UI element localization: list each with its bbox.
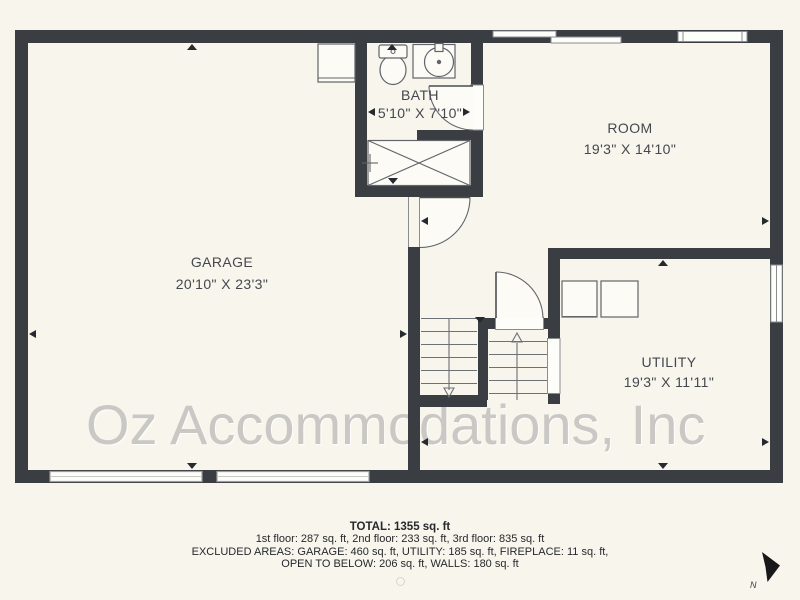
dimension-marker bbox=[421, 438, 428, 446]
dimension-marker bbox=[658, 260, 668, 266]
room-name: GARAGE bbox=[191, 254, 253, 270]
room-name: ROOM bbox=[607, 120, 652, 136]
total-area: TOTAL: 1355 sq. ft bbox=[0, 521, 800, 533]
room-label-bath: BATH 5'10" X 7'10" bbox=[345, 86, 495, 122]
bath-wall-stub bbox=[417, 130, 473, 140]
hall-wall bbox=[408, 247, 420, 483]
windows bbox=[493, 31, 782, 394]
stairs-bottom-wall bbox=[420, 395, 487, 407]
room-dimensions: 19'3" X 11'11" bbox=[569, 372, 769, 392]
door-opening bbox=[496, 318, 544, 330]
bath-wall-right-upper bbox=[471, 43, 483, 85]
room-label-garage: GARAGE 20'10" X 23'3" bbox=[122, 251, 322, 295]
stairs-railing bbox=[548, 339, 561, 394]
toilet-icon bbox=[379, 45, 407, 85]
wall-top bbox=[15, 30, 783, 43]
sliding-door-panel bbox=[551, 37, 621, 43]
room-label-utility: UTILITY 19'3" X 11'11" bbox=[569, 352, 769, 392]
room-dimensions: 20'10" X 23'3" bbox=[122, 273, 322, 295]
sink-icon bbox=[413, 44, 455, 79]
dimension-marker bbox=[658, 463, 668, 469]
utility-wall-top bbox=[549, 248, 783, 259]
stairs-up-arrow bbox=[512, 333, 522, 342]
washer-icon bbox=[562, 281, 597, 317]
floorplan-canvas: Oz Accommodations, Inc bbox=[0, 0, 800, 600]
excluded-areas-line2: OPEN TO BELOW: 206 sq. ft, WALLS: 180 sq… bbox=[0, 558, 800, 570]
bath-wall-bottom bbox=[355, 185, 483, 197]
logo-mark bbox=[396, 577, 405, 586]
room-name: UTILITY bbox=[642, 354, 697, 370]
sliding-door-panel bbox=[493, 31, 556, 37]
dimension-marker bbox=[29, 330, 36, 338]
stairs-down-flight bbox=[421, 319, 477, 398]
dimension-marker bbox=[762, 217, 769, 225]
fireplace bbox=[318, 44, 355, 82]
dimension-marker bbox=[187, 463, 197, 469]
room-dimensions: 5'10" X 7'10" bbox=[345, 104, 495, 122]
dimension-marker bbox=[762, 438, 769, 446]
stairs-door-swing bbox=[496, 272, 544, 330]
window bbox=[678, 32, 747, 42]
north-label: N bbox=[750, 580, 757, 590]
dryer-icon bbox=[601, 281, 638, 317]
floor-areas: 1st floor: 287 sq. ft, 2nd floor: 233 sq… bbox=[0, 533, 800, 545]
shower-icon bbox=[368, 141, 470, 186]
room-name: BATH bbox=[401, 87, 439, 103]
wall-left bbox=[15, 30, 28, 483]
excluded-areas-line1: EXCLUDED AREAS: GARAGE: 460 sq. ft, UTIL… bbox=[0, 546, 800, 558]
stairs-divider-wall bbox=[478, 318, 488, 400]
room-dimensions: 19'3" X 14'10" bbox=[530, 139, 730, 160]
area-summary: TOTAL: 1355 sq. ft 1st floor: 287 sq. ft… bbox=[0, 521, 800, 571]
utility-wall-left-stub bbox=[548, 393, 560, 404]
utility-wall-left bbox=[548, 248, 560, 339]
stairs-up-flight bbox=[489, 333, 547, 400]
dimension-marker bbox=[400, 330, 407, 338]
room-label-room: ROOM 19'3" X 14'10" bbox=[530, 118, 730, 160]
dimension-marker bbox=[187, 44, 197, 50]
